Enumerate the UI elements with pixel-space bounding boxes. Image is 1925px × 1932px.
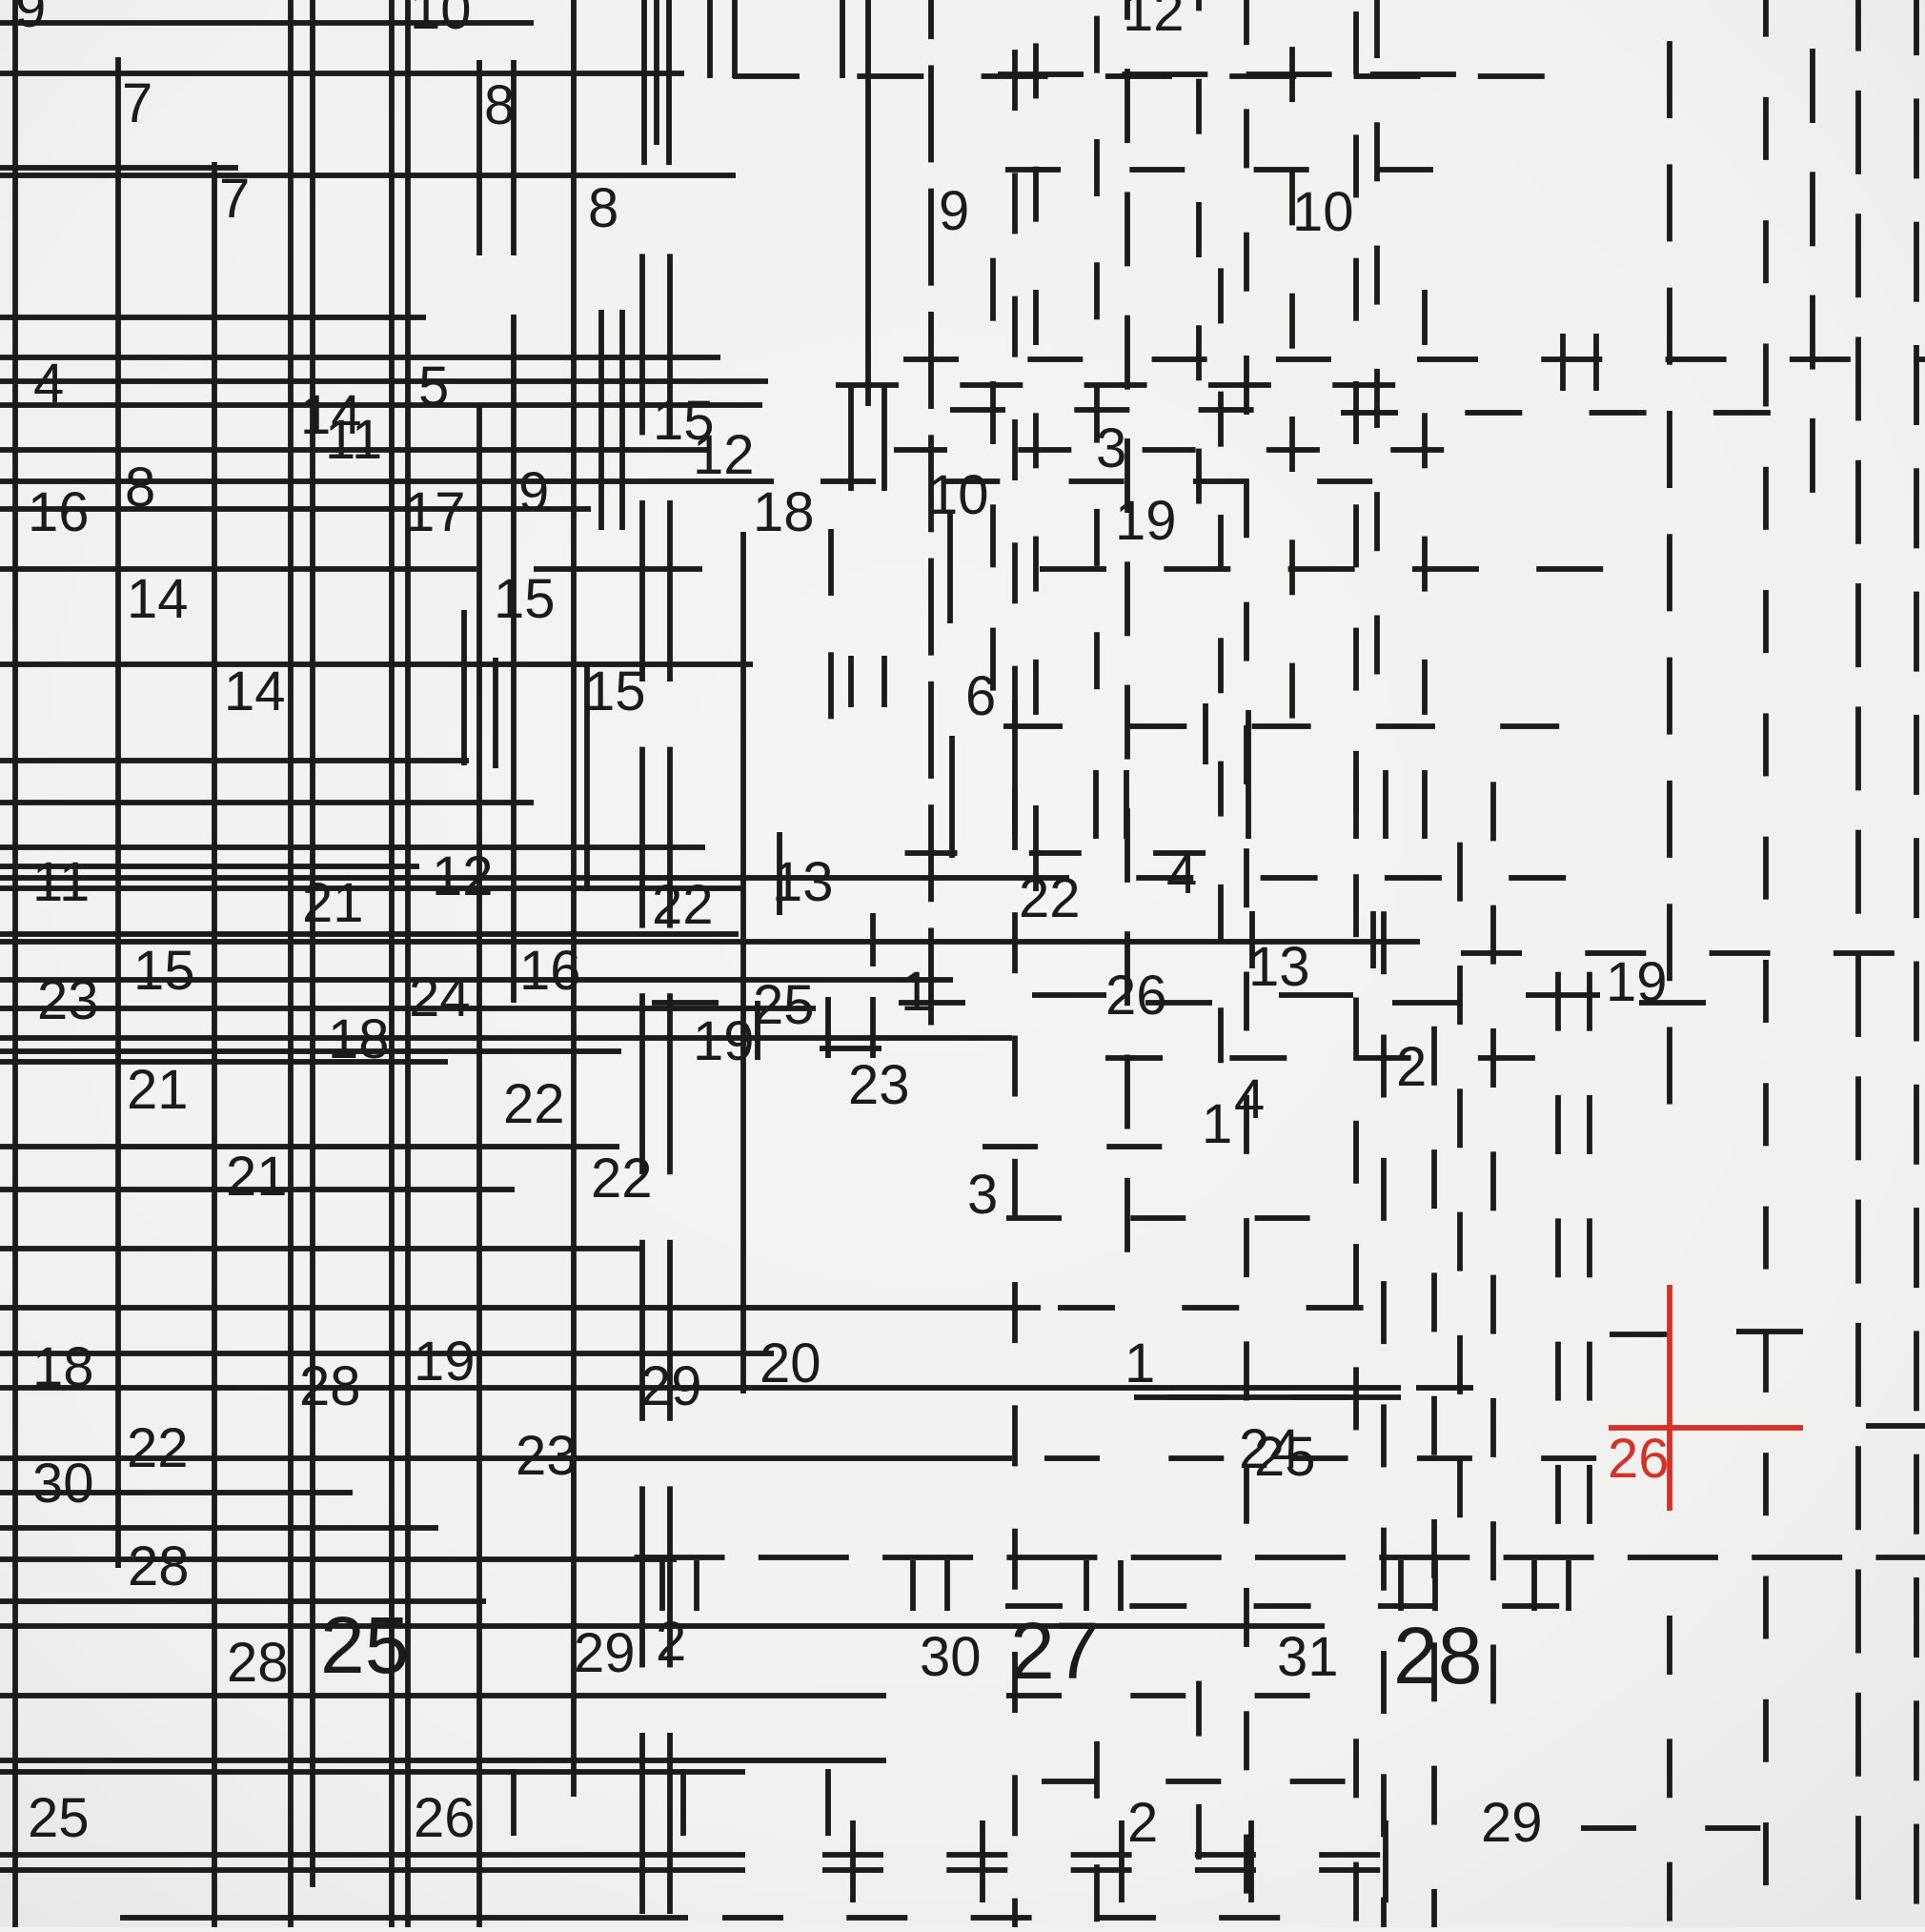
- svg-text:15: 15: [133, 940, 195, 1002]
- svg-text:21: 21: [302, 872, 364, 934]
- svg-text:1: 1: [901, 961, 931, 1023]
- svg-text:1: 1: [1125, 1332, 1155, 1394]
- svg-text:16: 16: [28, 481, 90, 543]
- svg-text:2: 2: [1396, 1036, 1427, 1098]
- svg-text:14: 14: [127, 568, 189, 630]
- svg-text:8: 8: [484, 74, 515, 136]
- svg-text:12: 12: [693, 424, 755, 486]
- svg-text:10: 10: [927, 464, 989, 526]
- svg-text:11: 11: [32, 851, 90, 913]
- svg-text:7: 7: [122, 72, 152, 134]
- svg-text:24: 24: [409, 966, 471, 1028]
- svg-text:29: 29: [640, 1355, 702, 1417]
- svg-text:27: 27: [1010, 1606, 1099, 1696]
- svg-text:19: 19: [1115, 490, 1177, 552]
- svg-text:17: 17: [404, 481, 466, 543]
- svg-text:20: 20: [760, 1332, 821, 1394]
- svg-text:14: 14: [224, 661, 286, 722]
- svg-text:2: 2: [1127, 1792, 1158, 1854]
- svg-text:9: 9: [15, 0, 46, 39]
- svg-text:2: 2: [656, 1611, 686, 1673]
- svg-text:11: 11: [325, 409, 382, 471]
- svg-text:19: 19: [414, 1331, 476, 1393]
- svg-text:30: 30: [920, 1626, 982, 1688]
- svg-text:22: 22: [652, 874, 714, 936]
- svg-text:18: 18: [328, 1008, 390, 1070]
- svg-text:12: 12: [1123, 0, 1185, 43]
- svg-text:26: 26: [1105, 965, 1167, 1027]
- svg-text:22: 22: [591, 1148, 653, 1210]
- svg-text:23: 23: [37, 969, 99, 1031]
- svg-text:28: 28: [128, 1535, 190, 1597]
- svg-text:15: 15: [494, 568, 556, 630]
- svg-text:21: 21: [127, 1059, 189, 1121]
- svg-text:18: 18: [753, 481, 815, 543]
- svg-text:3: 3: [1096, 417, 1126, 479]
- svg-text:25: 25: [753, 974, 815, 1036]
- svg-text:21: 21: [226, 1146, 288, 1208]
- svg-text:29: 29: [574, 1622, 636, 1684]
- svg-text:4: 4: [1234, 1068, 1265, 1130]
- svg-text:10: 10: [1292, 181, 1354, 243]
- svg-text:23: 23: [848, 1054, 910, 1116]
- svg-text:16: 16: [519, 940, 581, 1002]
- svg-text:31: 31: [1277, 1626, 1339, 1688]
- svg-text:28: 28: [227, 1632, 289, 1694]
- svg-text:13: 13: [772, 851, 834, 913]
- svg-text:15: 15: [584, 661, 646, 722]
- svg-text:12: 12: [432, 845, 494, 907]
- svg-text:23: 23: [516, 1425, 577, 1487]
- svg-text:8: 8: [125, 457, 155, 519]
- svg-text:18: 18: [32, 1336, 94, 1398]
- svg-text:7: 7: [219, 168, 250, 230]
- svg-text:28: 28: [299, 1355, 361, 1417]
- svg-text:5: 5: [418, 356, 449, 417]
- svg-text:25: 25: [320, 1600, 409, 1690]
- svg-text:9: 9: [939, 180, 969, 242]
- svg-text:26: 26: [1608, 1428, 1670, 1490]
- svg-text:30: 30: [32, 1453, 94, 1515]
- svg-text:4: 4: [1166, 844, 1197, 905]
- svg-text:9: 9: [518, 461, 549, 523]
- svg-text:22: 22: [127, 1417, 189, 1479]
- svg-text:13: 13: [1248, 936, 1310, 998]
- svg-text:19: 19: [1606, 951, 1668, 1013]
- svg-text:6: 6: [965, 665, 996, 727]
- svg-text:26: 26: [414, 1787, 476, 1849]
- svg-text:1: 1: [1202, 1093, 1232, 1155]
- svg-text:22: 22: [503, 1073, 565, 1135]
- svg-text:28: 28: [1393, 1611, 1482, 1700]
- svg-text:8: 8: [588, 177, 618, 239]
- svg-text:3: 3: [967, 1164, 998, 1226]
- svg-text:4: 4: [33, 353, 64, 415]
- svg-text:22: 22: [1019, 867, 1081, 929]
- svg-text:25: 25: [28, 1787, 90, 1849]
- svg-text:29: 29: [1481, 1792, 1543, 1854]
- svg-text:25: 25: [1254, 1426, 1316, 1488]
- svg-text:19: 19: [693, 1010, 755, 1072]
- svg-text:10: 10: [410, 0, 472, 41]
